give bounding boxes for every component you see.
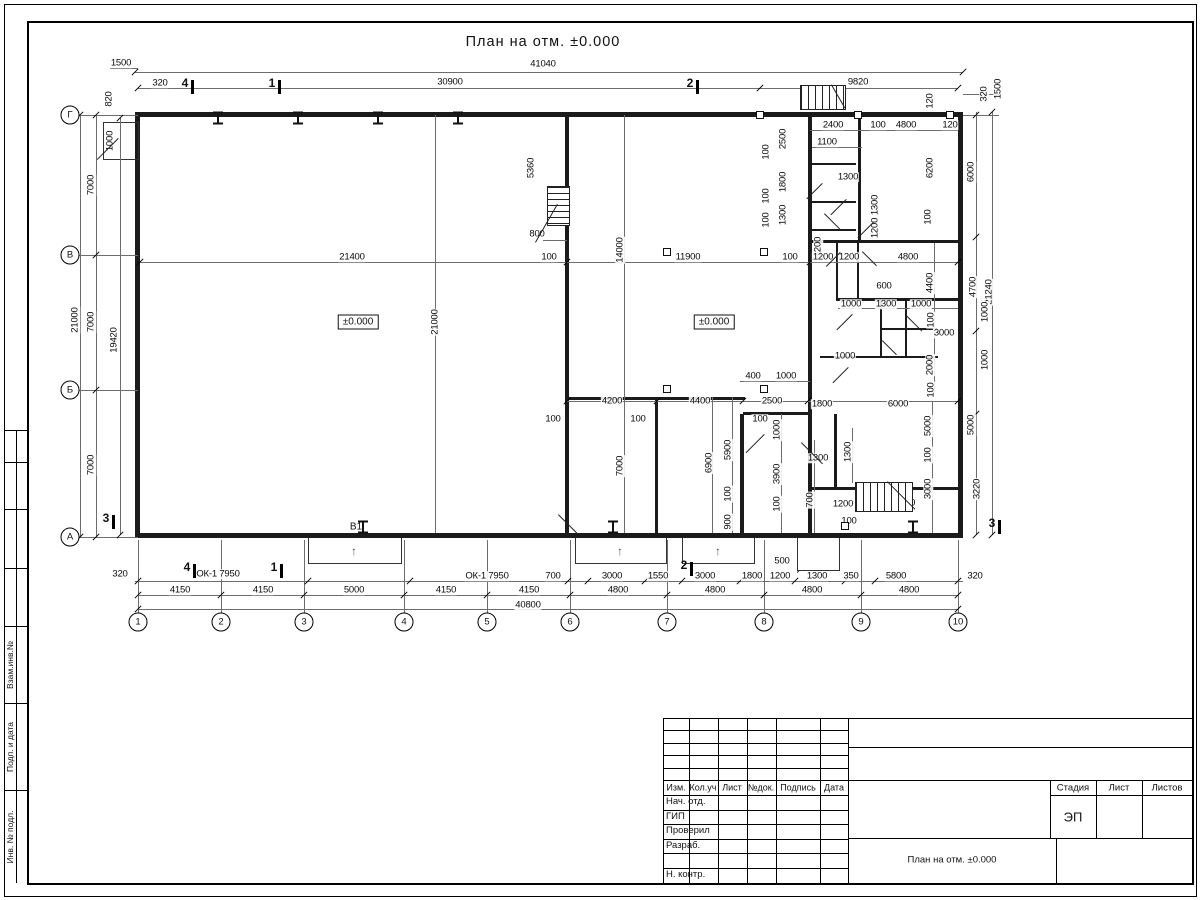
table-line: [16, 430, 17, 883]
drawing-sheet: План на отм. ±0.000 41040309009820150032…: [0, 0, 1200, 900]
stamp-label-podp: Подп. и дата: [6, 722, 15, 772]
stamp-label-inv: Инв. № подл.: [6, 811, 15, 864]
stamp-label-vzam: Взам.инв.№: [6, 641, 15, 689]
side-stamp: Взам.инв.№ Подп. и дата Инв. № подл.: [0, 0, 1200, 900]
